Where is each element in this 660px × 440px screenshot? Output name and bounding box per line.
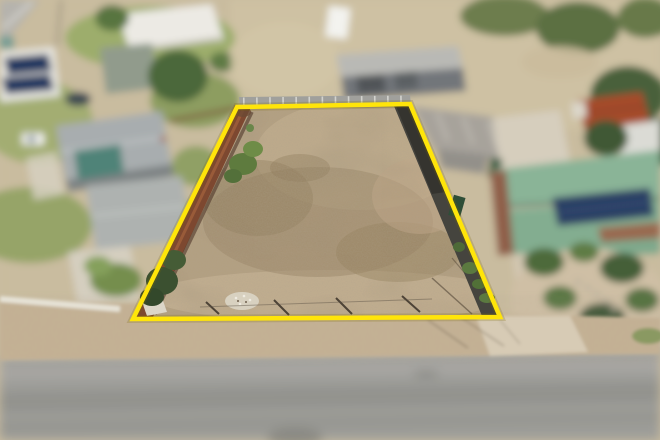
caravan <box>325 6 351 39</box>
bush-bl-2 <box>84 256 112 276</box>
sand-under-trees <box>522 46 598 78</box>
garden-rock-1 <box>575 279 581 285</box>
gravel-drive-verge <box>476 316 588 356</box>
tree-big-center-left <box>148 50 208 102</box>
road-mark-right <box>413 370 439 378</box>
dark-car <box>65 92 91 106</box>
white-car-window <box>27 135 36 143</box>
wall-weed-4 <box>453 242 465 252</box>
rubble-dark-2 <box>245 301 247 303</box>
rubble-speck-4 <box>239 303 242 306</box>
rubble-speck-3 <box>249 299 252 302</box>
shrub-left-2 <box>243 141 263 157</box>
rubble-pile <box>225 292 259 310</box>
white-gable-end <box>571 101 587 119</box>
garden-bush-1 <box>524 248 564 276</box>
rubble-speck-1 <box>235 297 238 300</box>
tree-mid-right <box>584 120 628 156</box>
gravel-top-mid <box>230 22 340 98</box>
garden-bush-2 <box>569 242 599 262</box>
rubble-speck-2 <box>243 295 246 298</box>
blurred-road <box>0 348 660 440</box>
shrub-left-4 <box>246 124 254 132</box>
aerial-photo <box>0 0 660 440</box>
warehouse-top-door-b <box>394 71 418 90</box>
garden-bush-3 <box>600 253 644 283</box>
teal-item-left-edge <box>0 36 14 49</box>
rubble-dark-1 <box>237 300 239 302</box>
tree-top-2 <box>536 2 620 54</box>
warehouse-top-door-a <box>356 74 386 94</box>
shrub-left-3 <box>224 169 242 183</box>
garden-rock-3 <box>594 291 600 297</box>
tree-round-top <box>95 5 129 31</box>
aerial-photo-frame <box>0 0 660 440</box>
warehouse-door-dot <box>160 136 166 142</box>
garden-rock-2 <box>585 285 591 291</box>
